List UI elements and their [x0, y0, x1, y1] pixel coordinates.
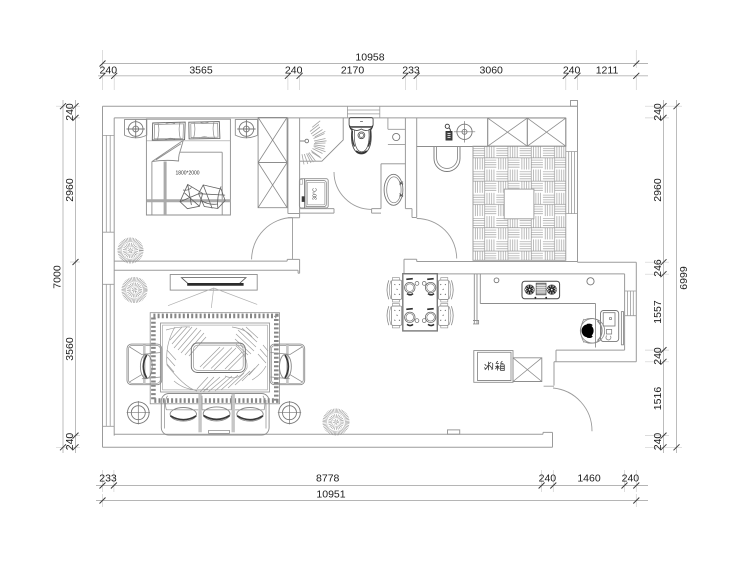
svg-text:1211: 1211	[596, 65, 619, 77]
svg-text:240: 240	[100, 65, 118, 77]
svg-text:1800*2000: 1800*2000	[176, 171, 200, 177]
svg-text:3560: 3560	[64, 337, 76, 361]
svg-text:240: 240	[563, 65, 581, 77]
svg-text:240: 240	[64, 433, 76, 451]
svg-text:10958: 10958	[355, 52, 384, 64]
svg-text:233: 233	[99, 473, 117, 485]
svg-text:240: 240	[652, 433, 664, 451]
svg-text:7000: 7000	[52, 265, 64, 289]
svg-text:233: 233	[402, 65, 420, 77]
svg-text:8778: 8778	[316, 473, 340, 485]
svg-text:10951: 10951	[316, 489, 345, 501]
svg-text:240: 240	[622, 473, 640, 485]
svg-text:240: 240	[539, 473, 557, 485]
svg-text:1557: 1557	[652, 300, 664, 324]
svg-text:3060: 3060	[480, 65, 504, 77]
svg-text:1460: 1460	[577, 473, 601, 485]
svg-text:240: 240	[652, 347, 664, 365]
svg-text:30°C: 30°C	[313, 188, 319, 200]
svg-text:2960: 2960	[652, 178, 664, 202]
svg-text:246: 246	[652, 259, 664, 277]
svg-text:240: 240	[64, 103, 76, 121]
svg-text:2960: 2960	[64, 178, 76, 202]
svg-text:1516: 1516	[652, 387, 664, 411]
svg-text:2170: 2170	[341, 65, 365, 77]
svg-text:240: 240	[652, 103, 664, 121]
svg-text:3565: 3565	[189, 65, 213, 77]
svg-text:6999: 6999	[678, 266, 690, 290]
svg-text:240: 240	[285, 65, 303, 77]
